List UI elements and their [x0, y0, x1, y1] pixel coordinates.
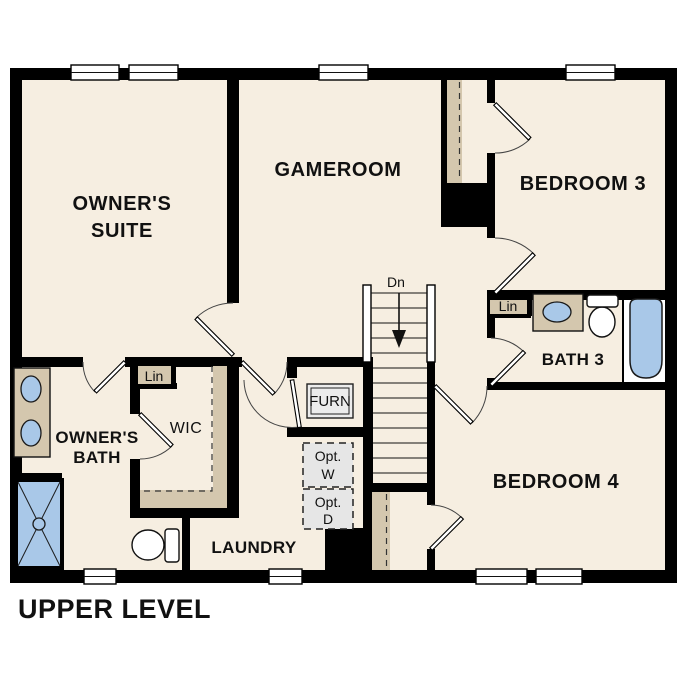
- wic-label: WIC: [170, 420, 203, 437]
- stair-rail-right: [427, 285, 435, 362]
- window: [476, 569, 527, 584]
- opt-washer-label-line1: Opt.: [315, 448, 341, 464]
- window: [129, 65, 178, 80]
- owners-bath-label-line1: OWNER'S: [55, 428, 138, 447]
- bath3-tub: [624, 299, 665, 382]
- wic-shelf-bottom: [140, 490, 227, 508]
- owners-bath-sink-1: [21, 376, 41, 402]
- window: [319, 65, 368, 80]
- wic-linen-label: Lin: [145, 368, 164, 384]
- bedroom4-label: BEDROOM 4: [493, 471, 620, 493]
- owners-bath-toilet: [132, 529, 179, 562]
- bath3-label: BATH 3: [542, 350, 605, 369]
- owners-bath-sink-2: [21, 420, 41, 446]
- window: [84, 569, 116, 584]
- window: [566, 65, 615, 80]
- window: [71, 65, 119, 80]
- opt-dryer-label-line1: Opt.: [315, 494, 341, 510]
- bedroom3-label: BEDROOM 3: [520, 173, 647, 195]
- plan-title: UPPER LEVEL: [18, 594, 211, 624]
- bath3-sink: [543, 302, 571, 322]
- floorplan-page: OWNER'S SUITE GAMEROOM BEDROOM 3 BEDROOM…: [0, 0, 687, 687]
- opt-washer-label-line2: W: [321, 466, 335, 482]
- owners-suite-label-line1: OWNER'S: [73, 193, 172, 215]
- bath3-linen-label: Lin: [499, 298, 518, 314]
- furnace-label: FURN: [309, 393, 351, 410]
- owners-bath-label-line2: BATH: [73, 448, 121, 467]
- stairs-down-label: Dn: [387, 274, 405, 290]
- opt-dryer-label-line2: D: [323, 511, 333, 527]
- wic-shelf-right: [213, 366, 227, 508]
- owners-suite-label-line2: SUITE: [91, 220, 153, 242]
- upper-level-floorplan: OWNER'S SUITE GAMEROOM BEDROOM 3 BEDROOM…: [0, 0, 687, 687]
- bath3-toilet: [587, 295, 618, 337]
- stair-rail-left: [363, 285, 371, 362]
- understair-closet-shelf: [372, 492, 390, 570]
- window: [269, 569, 302, 584]
- window: [536, 569, 582, 584]
- owners-bath-shower: [16, 480, 62, 568]
- laundry-label: LAUNDRY: [211, 538, 297, 557]
- gameroom-label: GAMEROOM: [274, 159, 401, 181]
